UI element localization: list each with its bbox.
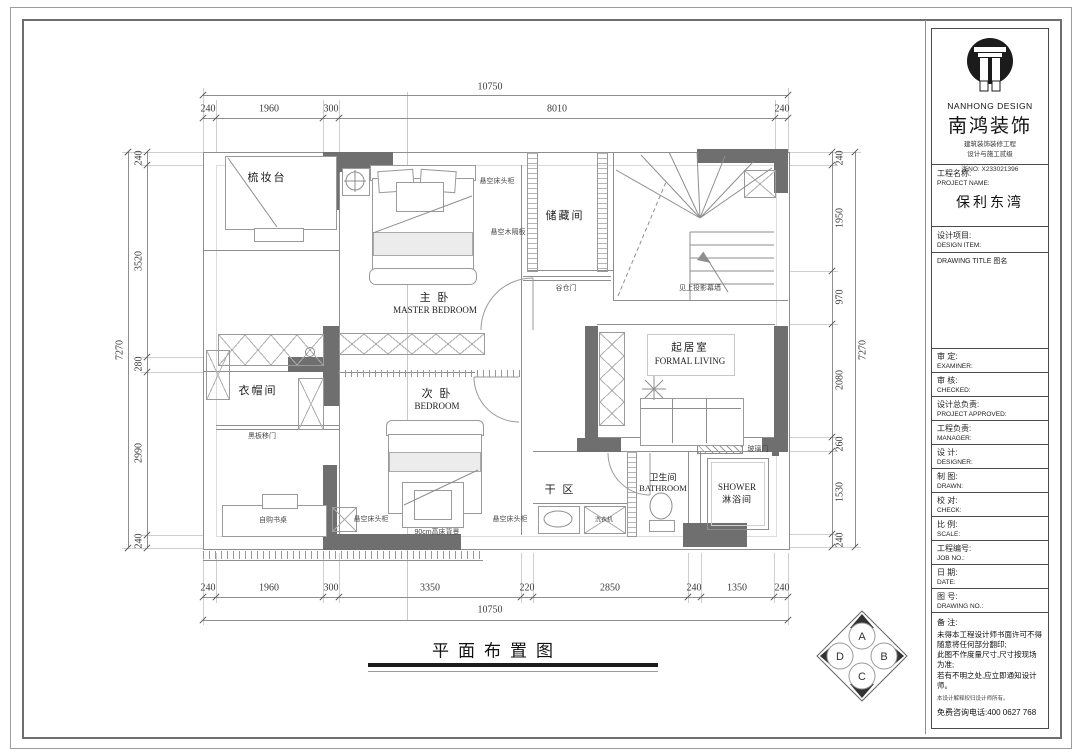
signoff-row: 审 核:CHECKED: [932,373,1048,397]
compass-letter-a: A [858,631,866,643]
brand-name-cn: 南鸿装饰 [932,111,1048,138]
door-arc-bedroom [474,377,519,422]
annotation-projection-wall: 见上投影幕墙 [679,283,721,293]
note-item: 此图不作度量尺寸,尺寸按现场为准; [937,650,1043,670]
signoff-row: 制 图:DRAWN: [932,469,1048,493]
plant-icon [642,376,666,400]
signoff-row: 日 期:DATE: [932,565,1048,589]
signoff-row: 校 对:CHECK: [932,493,1048,517]
row-label-en: EXAMINER: [937,363,1043,370]
drawing-title-label: DRAWING TITLE 图名 [937,258,1007,265]
row-label-en: JOB NO.: [937,555,1043,562]
blanket-fold [404,470,478,505]
row-label-en: DRAWN: [937,483,1043,490]
annotation-desk: 自购书桌 [259,515,287,525]
brand-qualification: 建筑装饰装修工程 设计与施工贰级 [932,140,1048,160]
stair-fan-lines [616,152,772,218]
brand-line1: 建筑装饰装修工程 [964,141,1016,148]
row-label-en: MANAGER: [937,435,1043,442]
row-label-cn: 设 计: [937,447,1043,458]
signoff-row: 设 计:DESIGNER: [932,445,1048,469]
design-item-label-cn: 设计项目: [937,230,1043,241]
note-item: 若有不明之处,应立即通知设计师。 [937,671,1043,691]
compass-letter-c: C [858,671,866,683]
row-label-cn: 工程负责: [937,423,1043,434]
row-label-en: DRAWING NO.: [937,603,1043,610]
caption-underline-thick [368,663,658,667]
annotation-barn-door: 谷仓门 [556,283,577,293]
drawing-caption: 平面布置图 [432,637,562,662]
blanket-fold [373,196,472,233]
row-label-en: CHECK: [937,507,1043,514]
annotation-washer: 洗衣机 [595,515,613,524]
room-label-master-cn: 主 卧 [420,289,451,305]
room-label-bath-en: BATHROOM [639,483,687,493]
room-label-shower-cn: 淋浴间 [722,493,752,506]
row-label-cn: 制 图: [937,471,1043,482]
room-label-dry: 干 区 [545,481,576,497]
signoff-row: 审 定:EXAMINER: [932,349,1048,373]
row-label-cn: 设计总负责: [937,399,1043,410]
room-label-master-en: MASTER BEDROOM [393,305,477,315]
toilet-bowl [650,493,672,519]
caption-underline-thin [368,671,658,672]
room-label-bedroom-en: BEDROOM [414,401,459,411]
annotation-glass-door: 玻璃门 [748,444,769,454]
annotation-wood-shelf: 悬空木隔板 [491,227,526,237]
row-label-cn: 工程编号: [937,543,1043,554]
titleblock-divider [925,20,926,734]
design-item-section: 设计项目: DESIGN ITEM: [932,227,1048,253]
row-label-cn: 日 期: [937,567,1043,578]
notes-label: 备 注: [937,617,1043,628]
annotation-bed-backdrop: 90cm高床背景 [414,527,459,537]
annotation-nightstand: 悬空床头柜 [354,514,389,524]
drawing-title-section: DRAWING TITLE 图名 [932,253,1048,349]
compass-letter-d: D [836,651,844,663]
room-label-shower-en: SHOWER [718,482,756,492]
project-name-value: 保利东湾 [937,192,1043,212]
project-label-en: PROJECT NAME: [937,180,1043,187]
row-label-en: DATE: [937,579,1043,586]
door-arc-master [481,278,533,330]
room-label-living-cn: 起居室 [671,340,709,355]
annotation-blackboard-door: 黑板移门 [248,431,276,441]
room-label-storage: 储藏间 [546,207,585,223]
signoff-row: 工程负责:MANAGER: [932,421,1048,445]
signoff-row: 图 号:DRAWING NO.: [932,589,1048,613]
compass-letter-b: B [880,651,887,663]
drawing-sheet: 10750 240 1960 300 8010 240 240 1960 300… [0,0,1080,755]
room-label-living-en: FORMAL LIVING [655,356,725,366]
brand-line2: 设计与施工贰级 [967,151,1013,158]
note-item: 未得本工程设计师书面许可不得随意将任何部分翻印; [937,630,1043,650]
elevation-compass: A B C D [810,605,920,710]
room-label-bath-cn: 卫生间 [649,471,676,484]
signoff-row: 比 例:SCALE: [932,517,1048,541]
signoff-row: 设计总负责:PROJECT APPROVED: [932,397,1048,421]
brand-section: NANHONG DESIGN 南鸿装饰 建筑装饰装修工程 设计与施工贰级 浙NO… [932,29,1048,165]
brand-name-en: NANHONG DESIGN [932,101,1048,111]
project-label-cn: 工程名称: [937,168,1043,179]
title-block: NANHONG DESIGN 南鸿装饰 建筑装饰装修工程 设计与施工贰级 浙NO… [931,28,1049,729]
row-label-cn: 校 对: [937,495,1043,506]
annotation-nightstand: 悬空床头柜 [480,176,515,186]
downlight-icon [306,348,315,357]
annotation-nightstand: 悬空床头柜 [493,514,528,524]
notes-disclaimer: 本设计解释权归设计师所有。 [937,694,1043,702]
ceiling-lamp-cross [344,170,366,192]
stair-break-line [618,182,666,296]
column-logo-icon [962,35,1018,95]
signoff-row: 工程编号:JOB NO.: [932,541,1048,565]
room-label-dressing: 梳妆台 [248,169,287,185]
row-label-cn: 比 例: [937,519,1043,530]
row-label-cn: 审 核: [937,375,1043,386]
row-label-en: PROJECT APPROVED: [937,411,1043,418]
design-item-label-en: DESIGN ITEM: [937,242,1043,249]
row-label-cn: 图 号: [937,591,1043,602]
room-label-bedroom-cn: 次 卧 [422,385,453,401]
hotline: 免费咨询电话:400 0627 768 [937,707,1043,718]
project-name-section: 工程名称: PROJECT NAME: 保利东湾 [932,165,1048,227]
notes-section: 备 注: 未得本工程设计师书面许可不得随意将任何部分翻印; 此图不作度量尺寸,尺… [932,613,1048,728]
row-label-en: CHECKED: [937,387,1043,394]
plan-area: 10750 240 1960 300 8010 240 240 1960 300… [0,0,925,755]
row-label-en: DESIGNER: [937,459,1043,466]
basin-bowl [544,511,572,527]
room-label-cloak: 衣帽间 [239,382,278,398]
row-label-en: SCALE: [937,531,1043,538]
row-label-cn: 审 定: [937,351,1043,362]
